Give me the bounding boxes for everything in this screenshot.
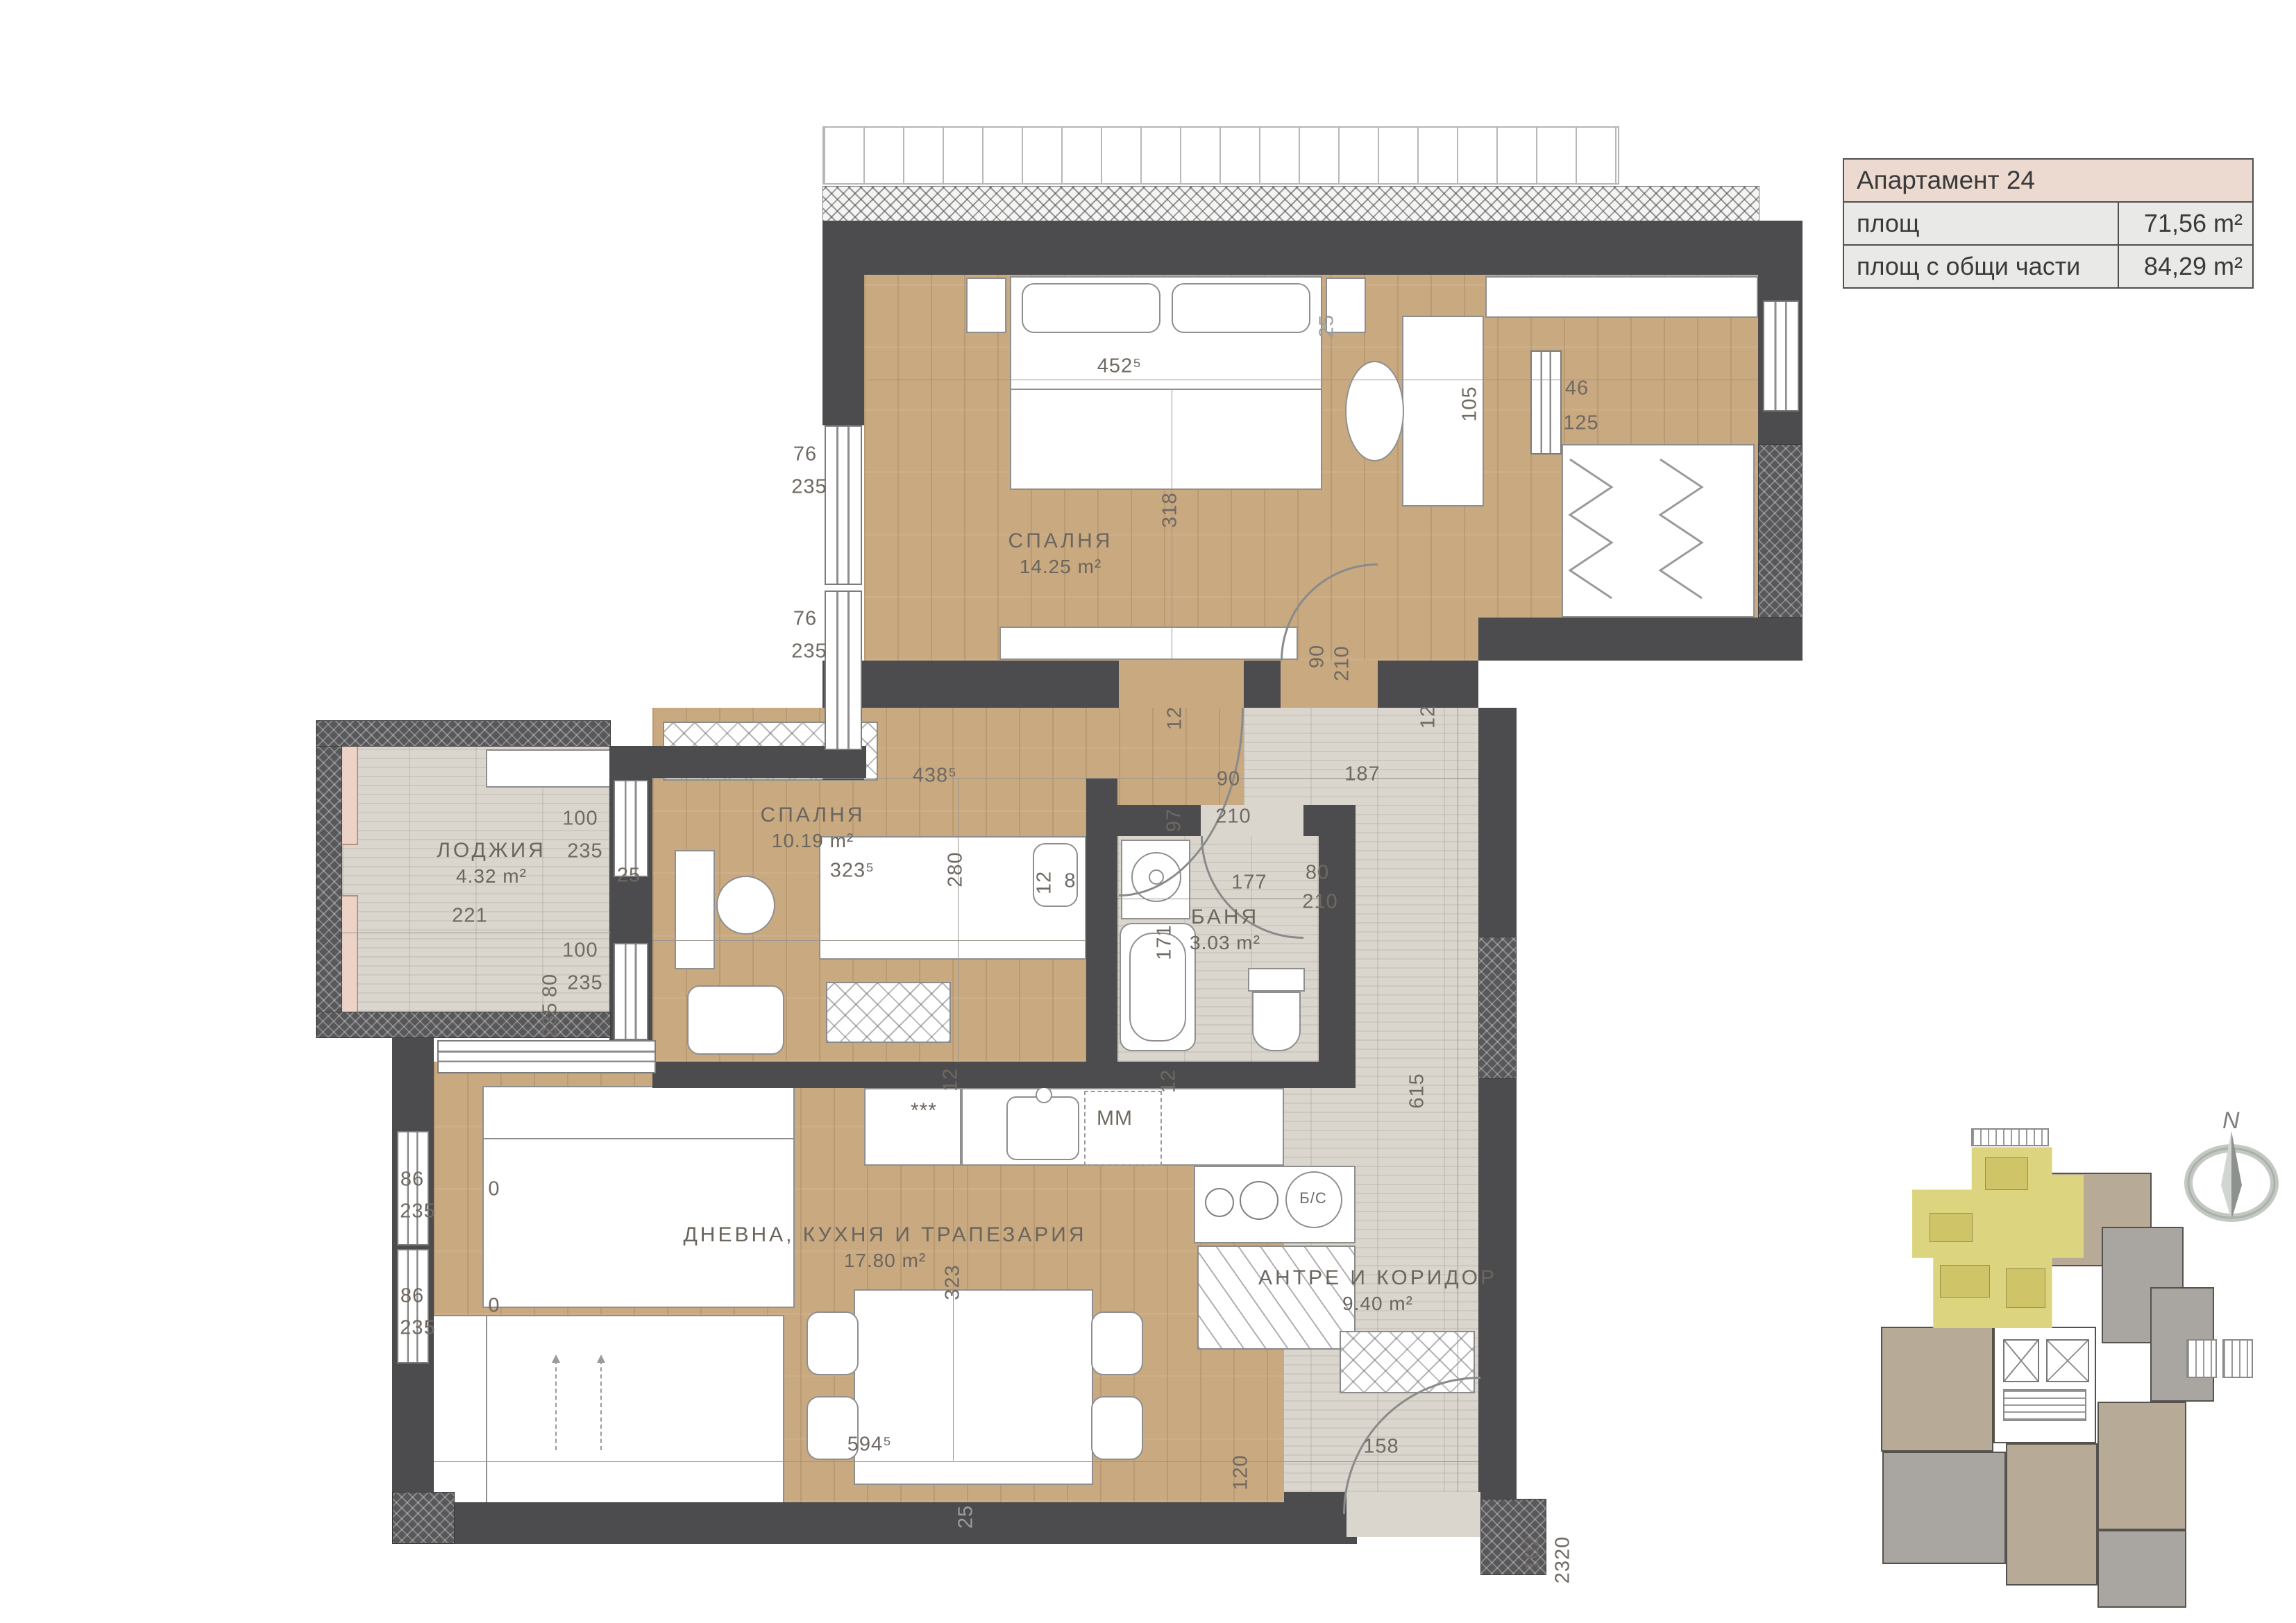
dimension-label: *** — [911, 1099, 937, 1123]
loggia-window — [614, 780, 648, 877]
dimension-label: 86 — [400, 1285, 424, 1308]
area-label: площ — [1844, 203, 2118, 244]
insulated-wall — [1478, 937, 1517, 1079]
dimension-label: 615 — [1406, 1073, 1429, 1108]
dimension-label: ММ — [1097, 1107, 1133, 1130]
dimension-label: Б/С — [1299, 1189, 1326, 1207]
dining-chair — [807, 1311, 859, 1375]
dimension-label: 210 — [1215, 806, 1251, 829]
corner-sofa — [396, 1315, 784, 1504]
sofa-sectional — [482, 1086, 795, 1308]
loggia-wall — [316, 1012, 611, 1038]
dimension-label: 105 — [1459, 386, 1482, 421]
loggia-sliding-door — [437, 1040, 656, 1073]
wall — [392, 1502, 1357, 1544]
overview-terrace — [2186, 1339, 2217, 1378]
dimension-label: 80 — [1306, 862, 1329, 885]
desk-chair — [1345, 361, 1404, 461]
wall — [1478, 708, 1517, 1537]
room-area-loggia: 4.32 m² — [456, 865, 527, 887]
dimension-label: 25 — [1316, 314, 1339, 338]
wall — [822, 661, 1119, 708]
dimension-label: 280 — [945, 851, 968, 887]
dimension-line — [868, 380, 1758, 380]
dimension-label: 12 — [1164, 706, 1187, 730]
dimension-label: 210 — [1302, 891, 1337, 914]
wall — [1284, 1492, 1347, 1537]
dimension-label: 25 — [955, 1505, 978, 1529]
window — [825, 590, 862, 750]
vanity — [675, 850, 715, 969]
sofa-seat-line — [486, 1316, 487, 1502]
dimension-label: 100 — [562, 808, 598, 831]
overview-stairs — [2003, 1389, 2086, 1421]
terrace-railing — [822, 126, 1619, 185]
dimension-label: 235 — [791, 476, 827, 499]
dining-chair — [1091, 1396, 1143, 1460]
blanket-line — [1011, 389, 1321, 390]
dimension-label: 8 — [1064, 870, 1076, 893]
wall — [1378, 661, 1478, 708]
overview-elevator — [2046, 1339, 2089, 1382]
dimension-line — [953, 1166, 954, 1461]
wardrobe-rail-zigzag — [1563, 445, 1753, 616]
window — [825, 425, 862, 585]
insulated-wall — [1758, 444, 1803, 618]
dimension-label: 76 — [793, 443, 817, 466]
area-value: 71,56 m² — [2118, 203, 2252, 244]
dimension-label: 2320 — [1552, 1536, 1575, 1584]
loggia-window — [614, 943, 648, 1040]
dimension-label: 120 — [1230, 1454, 1253, 1490]
dimension-line — [652, 940, 1086, 941]
dimension-label: 12 — [940, 1068, 963, 1091]
room-label-hall: АНТРЕ И КОРИДОР — [1258, 1266, 1497, 1290]
dimension-label: 235 — [400, 1317, 435, 1340]
kitchen-sink — [1006, 1096, 1079, 1160]
compass-needle-light — [2221, 1131, 2231, 1220]
kitchen-cabinet — [1197, 1246, 1356, 1350]
overview-furniture — [1940, 1265, 1990, 1298]
dimension-label: 102 — [1521, 1535, 1544, 1570]
wall — [652, 1062, 1356, 1088]
floor-plan-sheet: Апартамент 24 площ 71,56 m² площ с общи … — [0, 0, 2296, 1623]
apartment-title: Апартамент 24 — [1844, 160, 2252, 203]
closet — [1485, 276, 1758, 318]
pillow — [1172, 283, 1310, 333]
dimension-label: 12 — [1158, 1069, 1181, 1093]
dimension-label: 323 — [942, 1264, 965, 1300]
overview-furniture — [1930, 1213, 1973, 1242]
dimension-label: 25 — [617, 865, 641, 887]
overview-unit — [2097, 1402, 2186, 1530]
sofa-bed-arrow — [600, 1360, 602, 1450]
overview-highlighted-apartment — [1909, 1144, 2084, 1328]
room-label-loggia: ЛОДЖИЯ — [437, 839, 546, 863]
dimension-label: 235 — [539, 1002, 562, 1037]
sofa-back-line — [484, 1138, 793, 1139]
dimension-label: 438⁵ — [913, 765, 957, 788]
room-area-hall: 9.40 m² — [1342, 1293, 1413, 1315]
dimension-label: 97 — [1163, 808, 1186, 832]
wall — [609, 746, 866, 778]
dimension-line — [434, 1461, 1478, 1462]
stove-burner — [1240, 1181, 1278, 1220]
loggia-wall — [316, 720, 611, 747]
apartment-info-table: Апартамент 24 площ 71,56 m² площ с общи … — [1843, 158, 2254, 289]
overview-unit — [2097, 1530, 2186, 1608]
overview-furniture — [2006, 1268, 2045, 1308]
dimension-label: 210 — [1331, 645, 1354, 681]
overview-furniture — [1985, 1157, 2028, 1190]
dimension-label: 318 — [1159, 492, 1182, 527]
dimension-label: 0 — [488, 1295, 500, 1318]
dimension-line — [1117, 899, 1319, 899]
dimension-label: 235 — [400, 1200, 435, 1223]
dimension-label: 125 — [1563, 412, 1598, 435]
room-area-living: 17.80 m² — [844, 1250, 927, 1272]
sofa-bed-arrow — [555, 1360, 557, 1450]
compass-n-label: N — [2222, 1110, 2240, 1134]
room-area-bathroom: 3.03 m² — [1190, 932, 1260, 954]
dimension-line — [1458, 708, 1458, 1492]
wall — [1478, 618, 1803, 661]
building-floor-overview: N — [1867, 1110, 2296, 1623]
insulated-wall — [392, 1492, 455, 1544]
faucet — [1036, 1087, 1052, 1103]
window — [1530, 350, 1562, 454]
dimension-label: 100 — [562, 940, 598, 962]
nightstand — [966, 278, 1006, 333]
wall — [822, 221, 1759, 275]
room-label-living: ДНЕВНА, КУХНЯ И ТРАПЕЗАРИЯ — [683, 1223, 1086, 1247]
overview-unit — [1881, 1327, 1993, 1452]
room-label-bathroom: БАНЯ — [1191, 906, 1259, 929]
dimension-label: 323⁵ — [830, 860, 875, 883]
wall — [1244, 661, 1281, 708]
door-opening — [1281, 661, 1378, 708]
armchair — [687, 985, 784, 1055]
pillow — [1022, 283, 1160, 333]
area-common-label: площ с общи части — [1844, 246, 2118, 287]
dining-chair — [1091, 1311, 1143, 1375]
wall — [822, 221, 864, 425]
dimension-label: 452⁵ — [1097, 355, 1142, 378]
overview-terrace — [2222, 1339, 2253, 1378]
cabinet — [826, 982, 951, 1043]
wardrobe — [1562, 444, 1755, 618]
dimension-label: 594⁵ — [847, 1434, 892, 1456]
window — [1763, 300, 1799, 411]
table-row: площ с общи части 84,29 m² — [1844, 244, 2252, 287]
wall — [1303, 805, 1356, 836]
table-row: площ 71,56 m² — [1844, 203, 2252, 244]
dimension-label: 90 — [1306, 645, 1329, 668]
room-label-bedroom-1: СПАЛНЯ — [1008, 529, 1113, 553]
compass: N — [2172, 1110, 2290, 1242]
dimension-label: 235 — [791, 640, 827, 663]
stove-burner — [1205, 1188, 1234, 1217]
dimension-line — [342, 933, 611, 933]
toilet-bowl — [1252, 992, 1301, 1051]
dimension-label: 46 — [1565, 377, 1589, 400]
door-opening — [1119, 661, 1244, 708]
overview-unit — [1882, 1452, 2006, 1564]
stool — [716, 876, 775, 935]
dimension-label: 86 — [400, 1169, 424, 1191]
area-common-value: 84,29 m² — [2118, 246, 2252, 287]
dimension-label: 76 — [793, 608, 817, 631]
bench — [486, 749, 611, 788]
overview-unit — [2006, 1443, 2097, 1586]
compass-needle-dark — [2231, 1131, 2242, 1220]
dimension-label: 158 — [1363, 1436, 1399, 1459]
room-area-bedroom-1: 14.25 m² — [1020, 556, 1102, 578]
overview-terrace — [1971, 1128, 2049, 1146]
dimension-label: 12 — [1417, 705, 1440, 729]
dimension-label: 187 — [1344, 763, 1380, 786]
dresser — [999, 627, 1298, 660]
insulation-strip — [822, 186, 1759, 222]
room-label-bedroom-2: СПАЛНЯ — [761, 804, 866, 827]
dimension-label: 221 — [452, 905, 487, 928]
dimension-label: 177 — [1231, 872, 1267, 894]
loggia-wall — [316, 720, 342, 1038]
overview-elevator — [2003, 1339, 2039, 1382]
dimension-label: 171 — [1154, 924, 1176, 960]
dimension-line — [958, 778, 959, 1062]
dimension-label: 80 — [539, 974, 562, 997]
dimension-label: 235 — [567, 972, 602, 995]
dimension-label: 0 — [488, 1178, 500, 1201]
dimension-label: 90 — [1217, 768, 1240, 791]
dimension-label: 12 — [1033, 871, 1056, 894]
dimension-label: 235 — [567, 840, 602, 863]
room-area-bedroom-2: 10.19 m² — [772, 830, 854, 852]
toilet-tank — [1248, 968, 1305, 992]
